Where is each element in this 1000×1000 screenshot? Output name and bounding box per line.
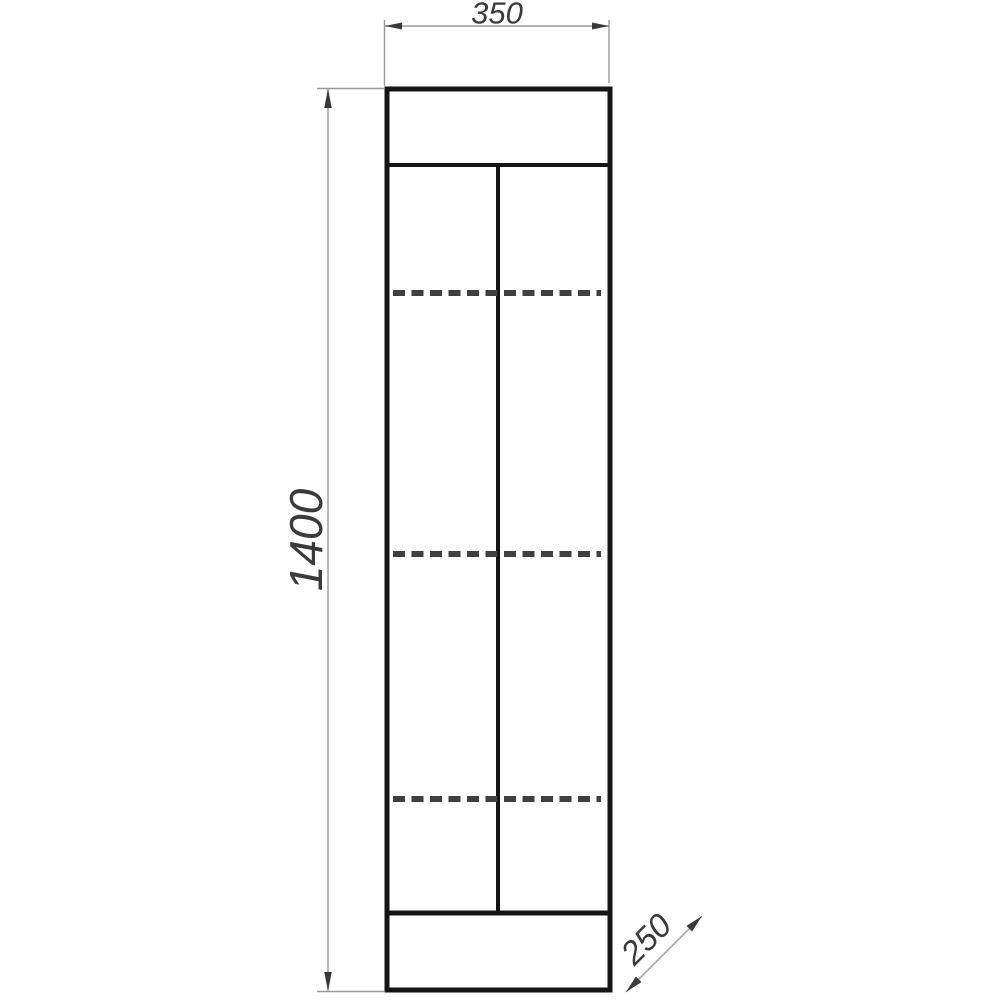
width-dimension: 350 (385, 0, 610, 86)
arrowhead-up (324, 89, 332, 108)
arrowhead-right (592, 23, 609, 30)
width-dimension-label: 350 (471, 0, 523, 31)
depth-dimension: 250 (613, 906, 702, 992)
technical-drawing: 350 1400 250 (0, 0, 1000, 1000)
height-dimension-label: 1400 (280, 488, 332, 591)
arrowhead-left (385, 23, 402, 30)
arrowhead-down (324, 972, 332, 991)
height-dimension: 1400 (280, 89, 384, 992)
cabinet-outline-group (387, 89, 610, 990)
depth-dimension-label: 250 (613, 906, 679, 972)
